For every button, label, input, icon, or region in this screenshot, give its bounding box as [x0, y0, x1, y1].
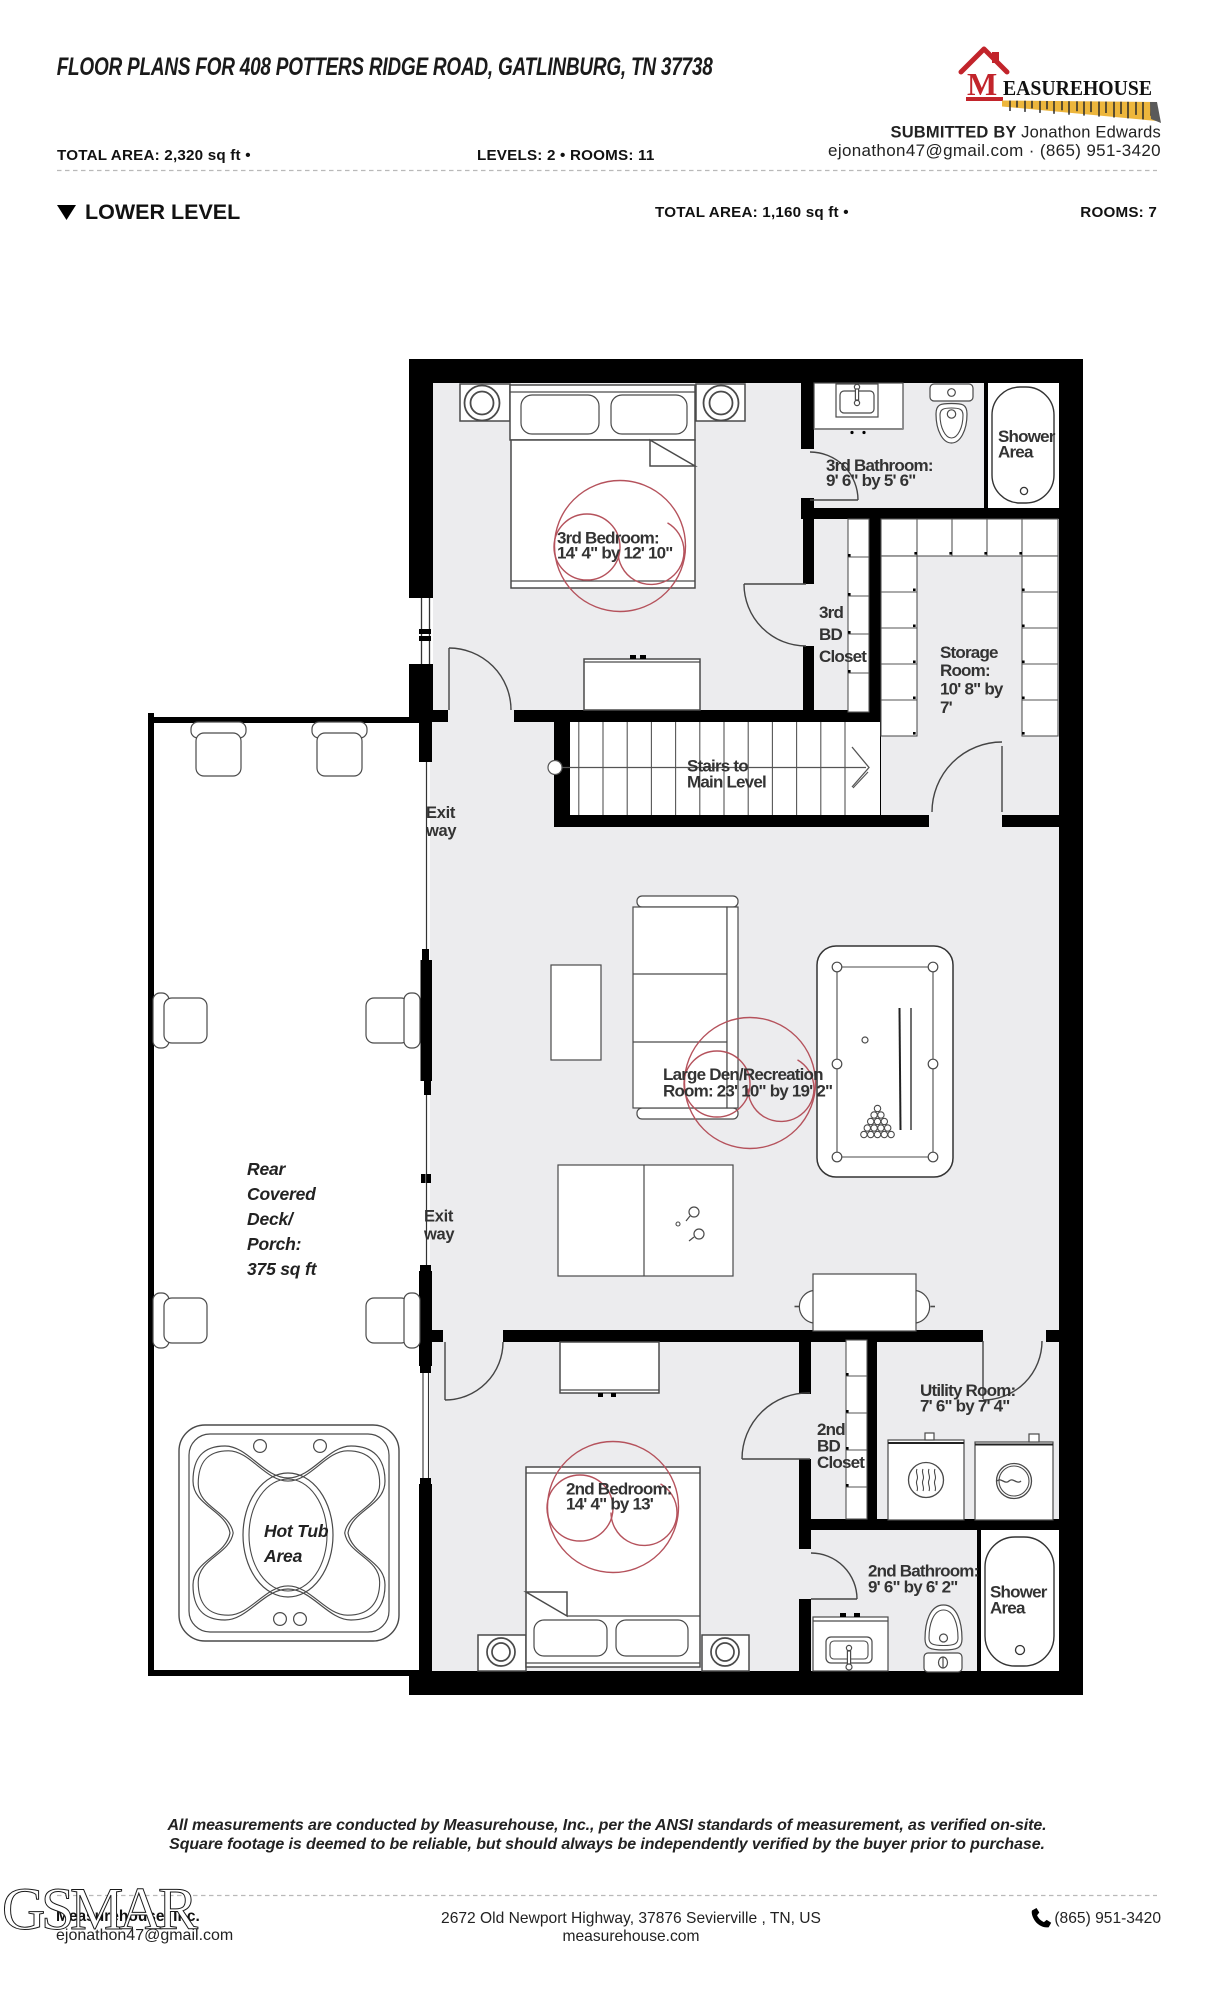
svg-text:Area: Area — [263, 1546, 303, 1566]
svg-text:measurehouse.com: measurehouse.com — [563, 1928, 700, 1945]
svg-text:way: way — [423, 1226, 455, 1244]
svg-text:9' 6" by 5' 6": 9' 6" by 5' 6" — [826, 471, 916, 490]
svg-text:14' 4" by 12' 10": 14' 4" by 12' 10" — [557, 544, 673, 563]
svg-text:way: way — [425, 822, 457, 840]
svg-text:Room:: Room: — [940, 661, 990, 680]
svg-text:Closet: Closet — [819, 647, 867, 666]
svg-text:Closet: Closet — [817, 1453, 865, 1472]
svg-text:SUBMITTED BY Jonathon Edwards: SUBMITTED BY Jonathon Edwards — [890, 124, 1161, 142]
svg-text:ejonathon47@gmail.com: ejonathon47@gmail.com — [56, 1927, 233, 1944]
svg-text:LEVELS: 2 • ROOMS: 11: LEVELS: 2 • ROOMS: 11 — [477, 147, 655, 164]
svg-text:375 sq ft: 375 sq ft — [247, 1259, 318, 1279]
svg-text:ROOMS: 7: ROOMS: 7 — [1080, 204, 1157, 221]
svg-text:Area: Area — [998, 443, 1034, 462]
svg-text:Room: 23' 10" by 19' 2": Room: 23' 10" by 19' 2" — [663, 1082, 832, 1101]
svg-text:Square footage is deemed to be: Square footage is deemed to be reliable,… — [169, 1836, 1045, 1853]
svg-text:3rd: 3rd — [819, 603, 843, 622]
svg-text:2672 Old Newport Highway, 3787: 2672 Old Newport Highway, 37876 Seviervi… — [441, 1910, 821, 1927]
svg-text:Area: Area — [990, 1599, 1026, 1618]
svg-text:TOTAL AREA: 2,320 sq ft •: TOTAL AREA: 2,320 sq ft • — [57, 147, 251, 164]
svg-text:Storage: Storage — [940, 643, 998, 662]
svg-text:LOWER LEVEL: LOWER LEVEL — [85, 200, 240, 224]
svg-text:EASUREHOUSE: EASUREHOUSE — [1003, 76, 1152, 100]
svg-text:7': 7' — [940, 698, 953, 717]
svg-text:Rear: Rear — [247, 1159, 287, 1179]
svg-text:ejonathon47@gmail.com · (865): ejonathon47@gmail.com · (865) 951-3420 — [828, 141, 1161, 160]
svg-text:7' 6" by 7' 4": 7' 6" by 7' 4" — [920, 1397, 1010, 1416]
svg-text:Hot Tub: Hot Tub — [264, 1521, 329, 1541]
svg-text:Deck/: Deck/ — [247, 1209, 295, 1229]
svg-text:All measurements are conducted: All measurements are conducted by Measur… — [166, 1817, 1046, 1834]
svg-text:9' 6" by 6' 2": 9' 6" by 6' 2" — [868, 1578, 958, 1597]
svg-text:(865) 951-3420: (865) 951-3420 — [1054, 1910, 1161, 1927]
svg-text:Exit: Exit — [426, 804, 456, 822]
svg-text:BD: BD — [819, 625, 842, 644]
svg-text:Covered: Covered — [247, 1184, 316, 1204]
svg-text:Porch:: Porch: — [247, 1234, 301, 1254]
svg-text:FLOOR PLANS FOR 408 POTTERS RI: FLOOR PLANS FOR 408 POTTERS RIDGE ROAD, … — [57, 52, 714, 80]
svg-text:10' 8" by: 10' 8" by — [940, 680, 1004, 699]
svg-text:TOTAL AREA: 1,160 sq ft •: TOTAL AREA: 1,160 sq ft • — [655, 204, 849, 221]
svg-text:M: M — [967, 66, 997, 102]
svg-text:Main Level: Main Level — [687, 773, 766, 792]
svg-text:Exit: Exit — [424, 1208, 454, 1226]
svg-text:14' 4" by 13': 14' 4" by 13' — [566, 1495, 654, 1514]
